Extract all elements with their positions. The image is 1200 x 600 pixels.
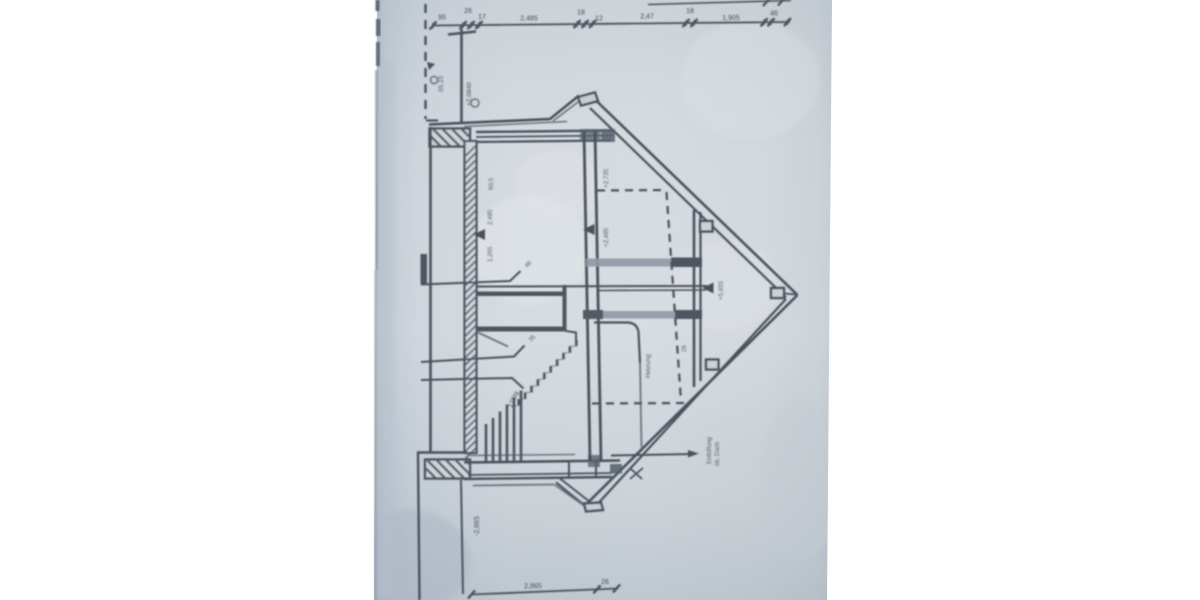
svg-text:12: 12 xyxy=(595,16,603,23)
svg-text:+2,485: +2,485 xyxy=(603,227,610,247)
svg-text:17: 17 xyxy=(478,14,486,21)
svg-text:+2,735: +2,735 xyxy=(603,168,610,188)
svg-text:2,485: 2,485 xyxy=(520,16,538,23)
svg-text:+5,655: +5,655 xyxy=(718,280,725,300)
svg-text:2,865: 2,865 xyxy=(524,583,542,591)
svg-text:2,485: 2,485 xyxy=(487,209,494,225)
svg-text:26: 26 xyxy=(682,345,688,352)
svg-text:46: 46 xyxy=(770,11,778,18)
svg-text:-2,865: -2,865 xyxy=(474,516,481,536)
svg-text:95: 95 xyxy=(438,15,446,22)
svg-text:üb. Dach: üb. Dach xyxy=(715,442,721,466)
svg-text:26: 26 xyxy=(464,8,472,15)
svg-text:18: 18 xyxy=(686,8,694,15)
svg-text:05,15: 05,15 xyxy=(438,75,445,92)
svg-text:Entlüftung: Entlüftung xyxy=(707,437,713,464)
svg-text:90,5: 90,5 xyxy=(488,177,495,190)
svg-text:2,47: 2,47 xyxy=(640,14,654,21)
svg-text:+2,0840: +2,0840 xyxy=(466,82,473,106)
svg-text:26: 26 xyxy=(601,579,609,586)
svg-text:Heizung: Heizung xyxy=(645,354,652,378)
svg-text:1,905: 1,905 xyxy=(722,15,740,22)
svg-text:1,265: 1,265 xyxy=(487,246,494,262)
svg-text:18: 18 xyxy=(577,10,585,17)
